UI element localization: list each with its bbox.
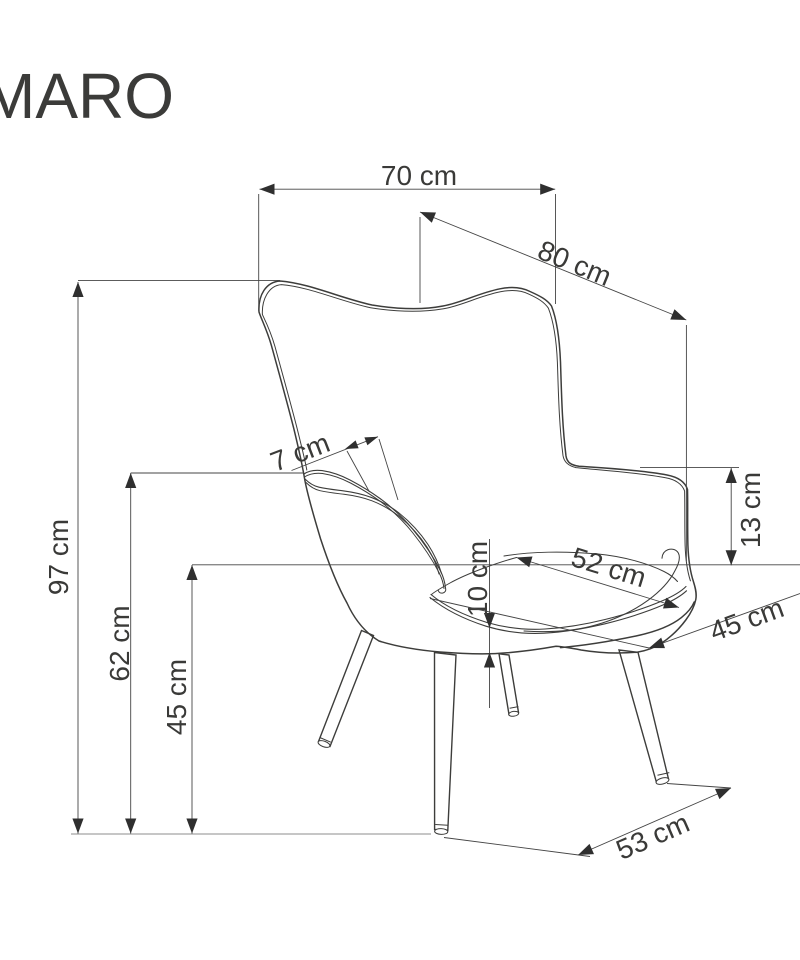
svg-text:97 cm: 97 cm (43, 519, 74, 595)
svg-text:13 cm: 13 cm (735, 472, 766, 548)
svg-text:10 cm: 10 cm (462, 541, 493, 617)
svg-text:70 cm: 70 cm (381, 160, 457, 191)
svg-text:62 cm: 62 cm (104, 605, 135, 681)
svg-text:45 cm: 45 cm (161, 659, 192, 735)
svg-text:MARO: MARO (0, 60, 174, 132)
